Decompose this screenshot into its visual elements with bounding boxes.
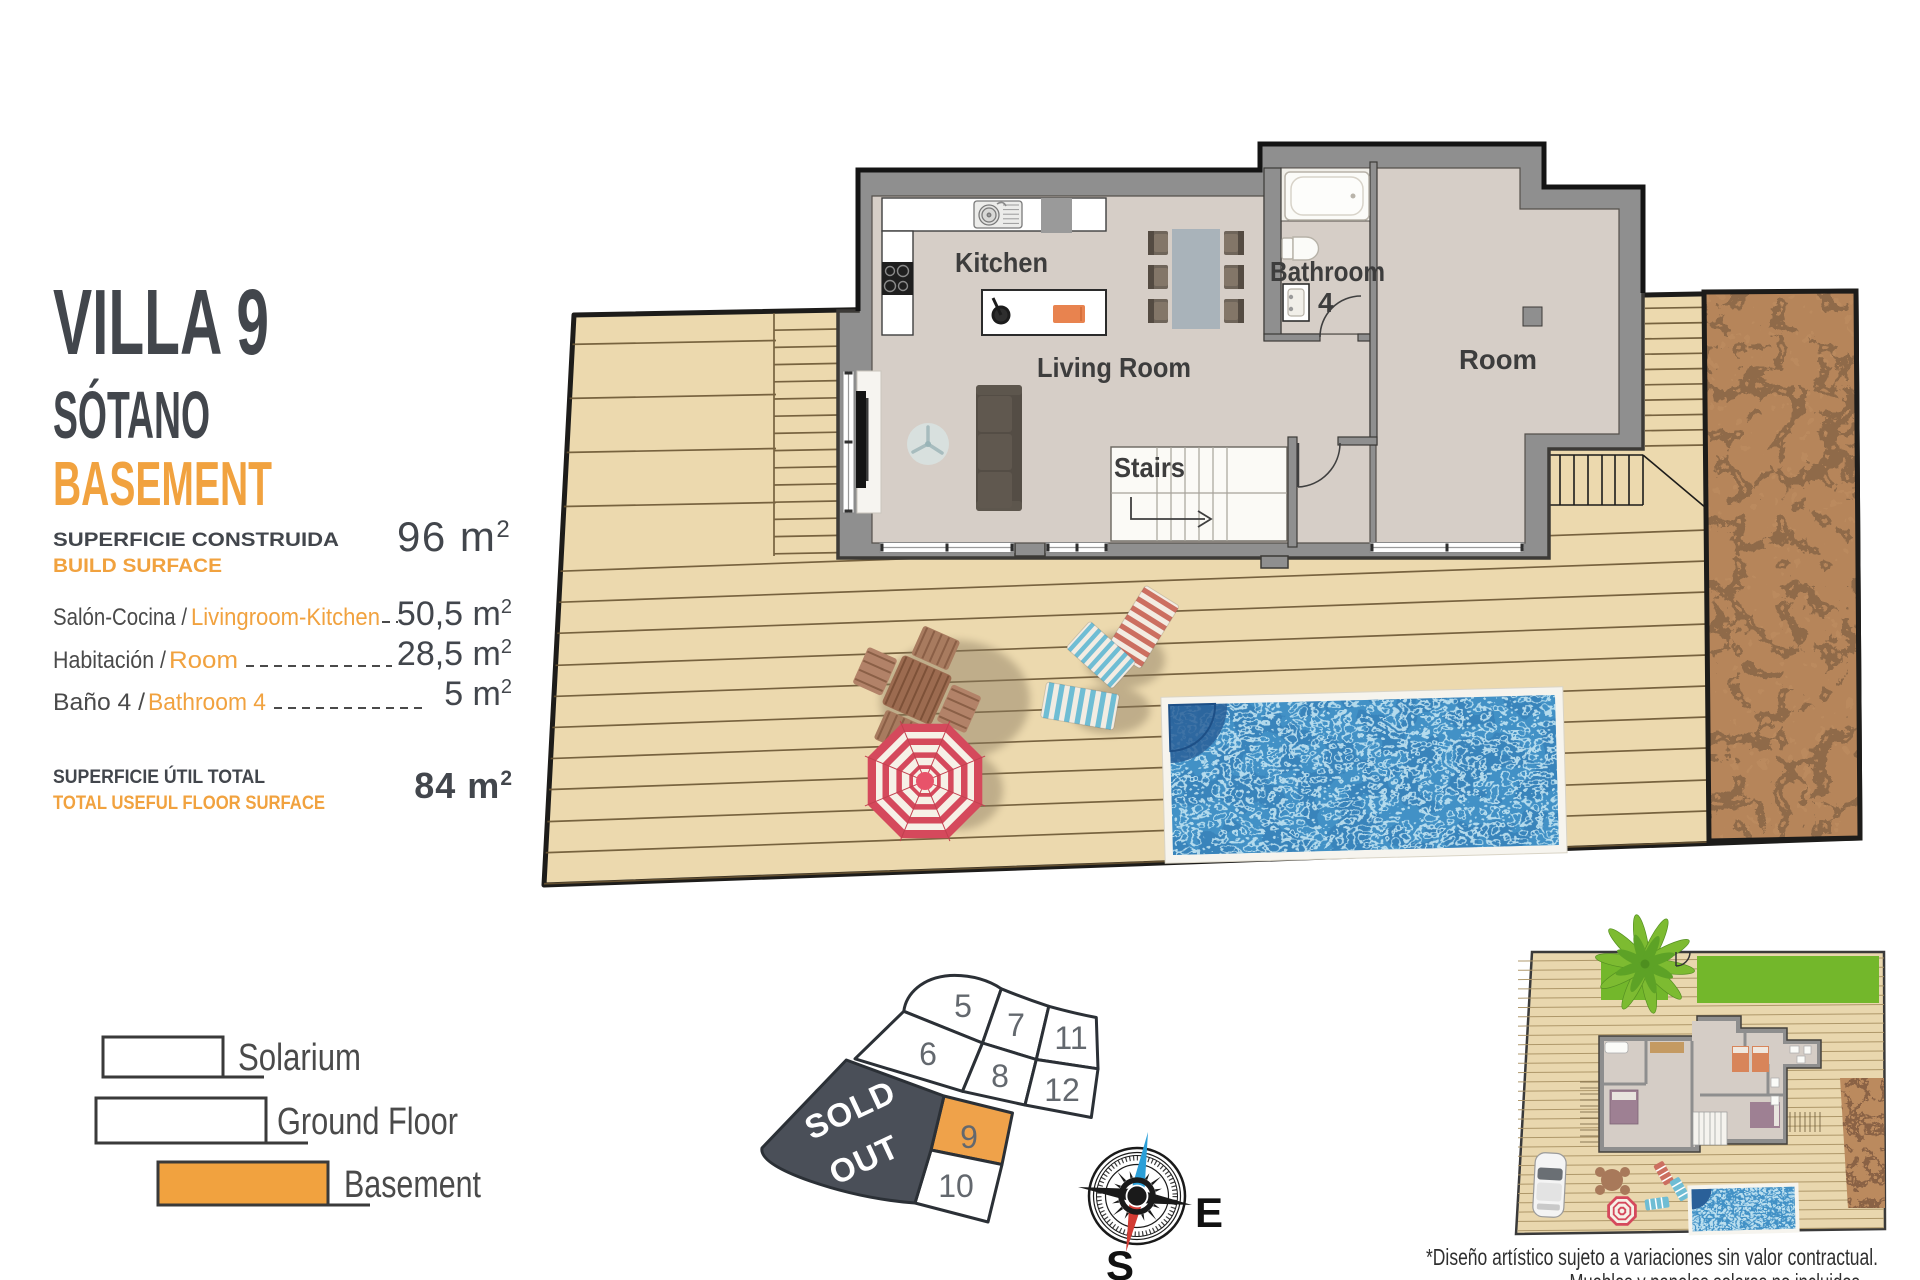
svg-text:6: 6	[919, 1036, 937, 1072]
svg-text:8: 8	[991, 1058, 1009, 1094]
svg-text:9: 9	[960, 1119, 978, 1155]
svg-text:BASEMENT: BASEMENT	[53, 450, 272, 519]
svg-text:E: E	[1195, 1189, 1223, 1236]
svg-text:Living Room: Living Room	[1037, 352, 1191, 383]
svg-text:SÓTANO: SÓTANO	[53, 378, 210, 453]
svg-text:10: 10	[938, 1168, 974, 1204]
svg-text:12: 12	[1044, 1072, 1080, 1108]
svg-text:96 m2: 96 m2	[397, 513, 511, 560]
svg-text:Room: Room	[169, 647, 238, 674]
svg-text:Baño 4 /: Baño 4 /	[53, 689, 145, 716]
svg-text:*Diseño artístico sujeto a var: *Diseño artístico sujeto a variaciones s…	[1426, 1244, 1878, 1270]
svg-text:S: S	[1106, 1242, 1134, 1280]
svg-text:7: 7	[1007, 1007, 1025, 1043]
svg-text:Habitación /: Habitación /	[53, 647, 166, 674]
svg-text:VILLA 9: VILLA 9	[53, 270, 269, 374]
svg-text:Solarium: Solarium	[238, 1037, 361, 1079]
svg-text:Bathroom: Bathroom	[1270, 256, 1385, 287]
svg-text:Bathroom 4: Bathroom 4	[148, 689, 266, 716]
svg-text:SUPERFICIE CONSTRUIDA: SUPERFICIE CONSTRUIDA	[53, 530, 339, 551]
svg-text:TOTAL USEFUL FLOOR SURFACE: TOTAL USEFUL FLOOR SURFACE	[53, 793, 325, 814]
svg-text:11: 11	[1054, 1020, 1087, 1056]
svg-text:SUPERFICIE ÚTIL TOTAL: SUPERFICIE ÚTIL TOTAL	[53, 766, 265, 788]
svg-text:Ground Floor: Ground Floor	[277, 1101, 458, 1143]
svg-text:50,5 m2: 50,5 m2	[397, 595, 512, 633]
svg-text:Basement: Basement	[344, 1164, 481, 1206]
svg-text:28,5 m2: 28,5 m2	[397, 635, 512, 673]
svg-text:Kitchen: Kitchen	[955, 247, 1048, 278]
svg-text:4: 4	[1318, 287, 1334, 318]
svg-text:84 m2: 84 m2	[414, 765, 513, 806]
svg-text:BUILD SURFACE: BUILD SURFACE	[53, 556, 222, 577]
svg-text:Salón-Cocina /: Salón-Cocina /	[53, 604, 187, 631]
svg-text:Room: Room	[1459, 344, 1537, 375]
svg-text:Stairs: Stairs	[1114, 452, 1185, 483]
svg-text:Livingroom-Kitchen: Livingroom-Kitchen	[191, 604, 380, 631]
svg-text:5: 5	[954, 988, 972, 1024]
svg-text:Muebles y paneles solares no i: Muebles y paneles solares no incluidos.	[1570, 1269, 1865, 1280]
